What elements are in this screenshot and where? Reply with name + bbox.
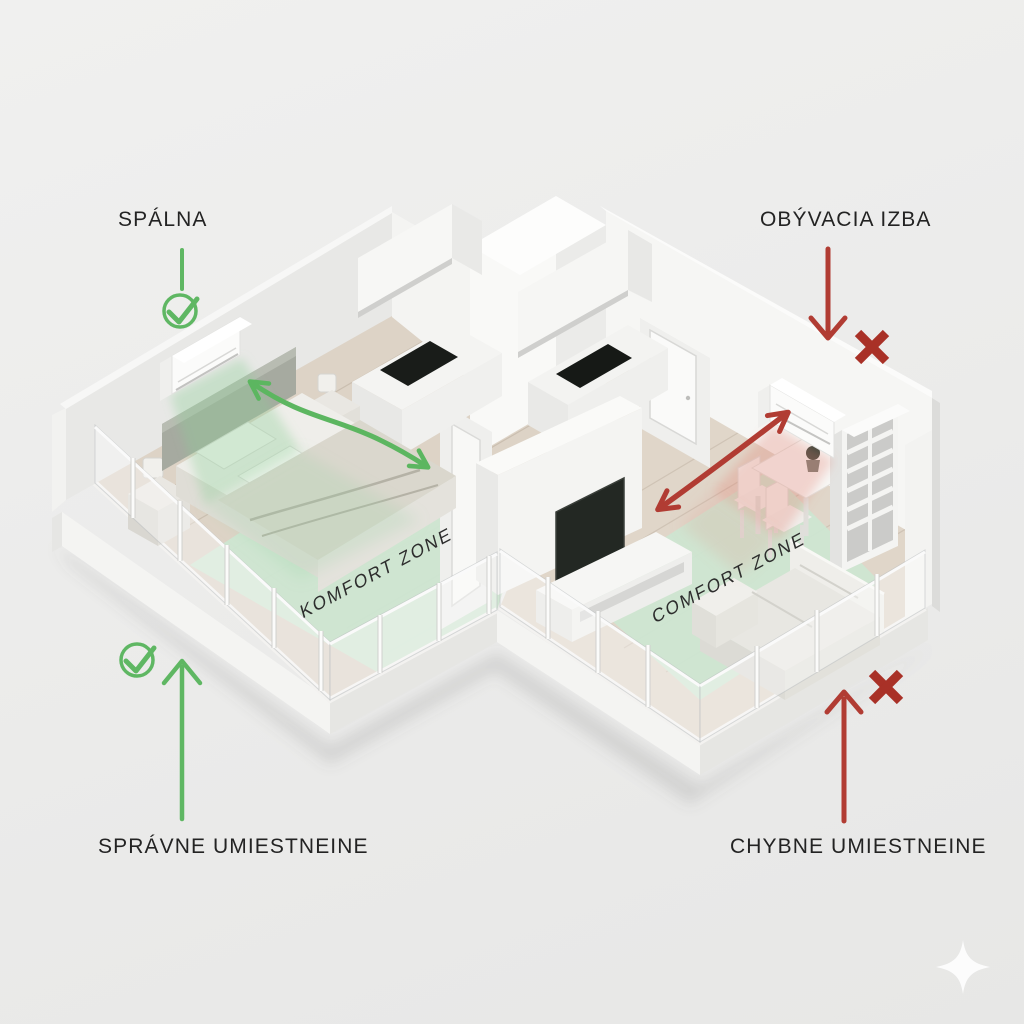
arrow-down-icon — [811, 249, 845, 338]
living-room-label: OBÝVACIA IZBA — [760, 208, 931, 232]
bedroom-label: SPÁLNA — [118, 208, 207, 232]
wrong-placement-label: CHYBNE UMIESTNEINE — [730, 835, 987, 859]
correct-placement-label: SPRÁVNE UMIESTNEINE — [98, 835, 369, 859]
ac-placement-infographic: SPÁLNA OBÝVACIA IZBA SPRÁVNE UMIESTNEINE… — [0, 0, 1024, 1024]
x-mark-icon-bottom — [872, 673, 900, 701]
check-circle-icon-top — [164, 295, 197, 327]
arrow-up-icon-correct — [164, 661, 200, 819]
check-circle-icon-bottom — [121, 644, 154, 676]
sparkle-icon — [936, 940, 990, 994]
x-mark-icon-top — [858, 333, 886, 361]
floorplan-illustration — [0, 0, 1024, 1024]
